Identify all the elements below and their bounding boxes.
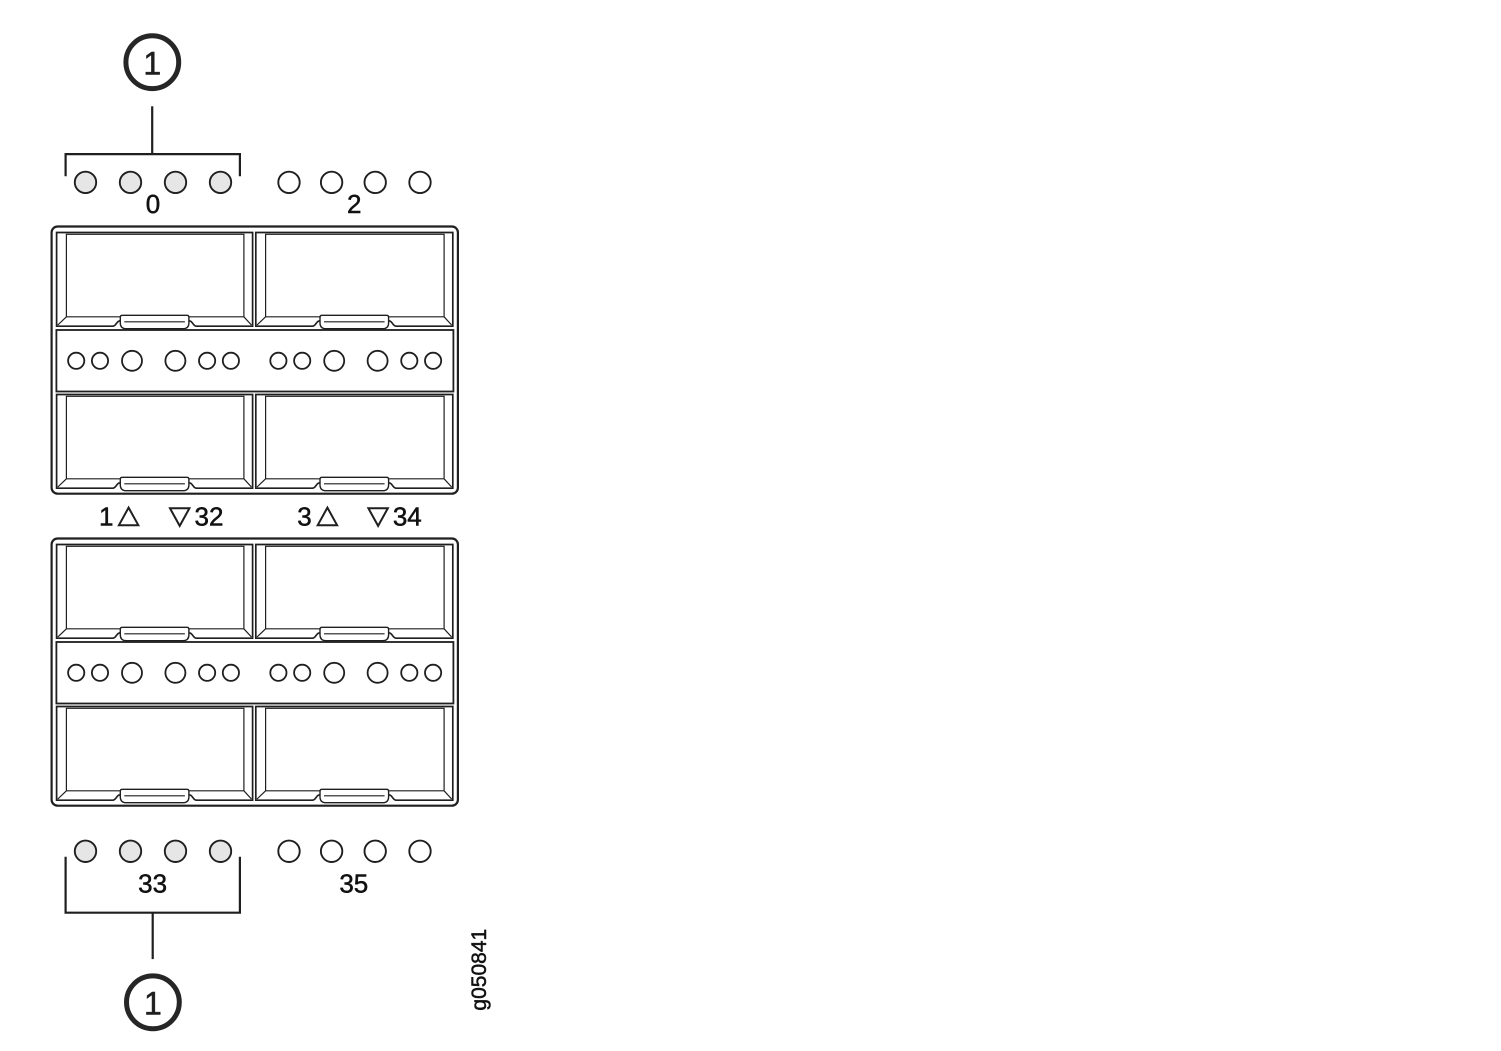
svg-text:33: 33 [138, 869, 167, 899]
svg-text:32: 32 [195, 502, 224, 532]
svg-text:35: 35 [339, 869, 368, 899]
svg-text:1: 1 [143, 46, 161, 82]
svg-text:3: 3 [297, 502, 311, 532]
svg-text:34: 34 [393, 502, 422, 532]
svg-text:1: 1 [99, 502, 113, 532]
svg-text:2: 2 [347, 189, 361, 219]
svg-text:g050841: g050841 [468, 929, 491, 1011]
svg-text:0: 0 [146, 189, 160, 219]
svg-text:1: 1 [144, 986, 162, 1022]
